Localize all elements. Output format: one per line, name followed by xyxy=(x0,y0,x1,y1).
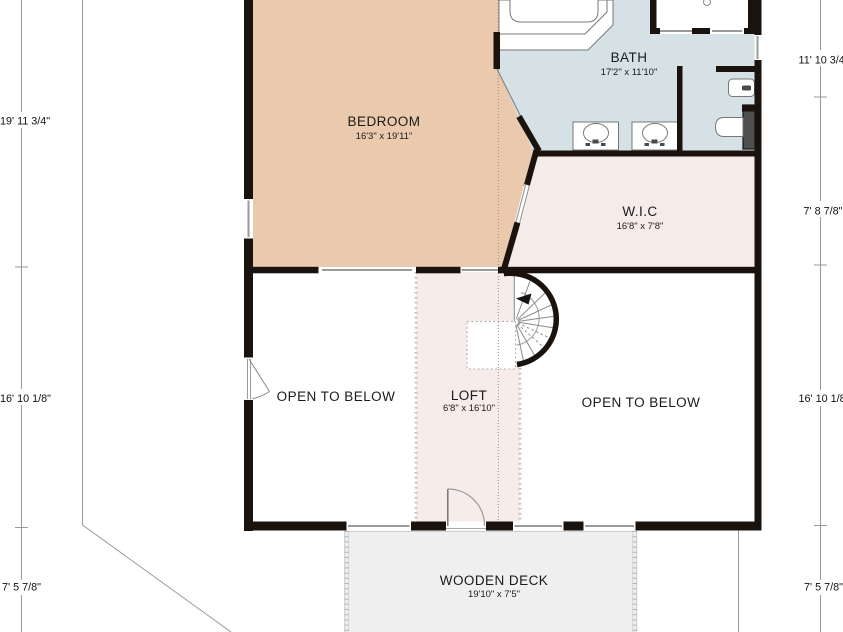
svg-text:WOODEN DECK: WOODEN DECK xyxy=(440,573,548,588)
svg-text:W.I.C: W.I.C xyxy=(622,204,657,219)
svg-text:11' 10 3/4": 11' 10 3/4" xyxy=(799,55,843,67)
svg-text:16' 10 1/8": 16' 10 1/8" xyxy=(799,393,843,405)
svg-text:17'2" x 11'10": 17'2" x 11'10" xyxy=(601,67,658,78)
svg-text:OPEN TO BELOW: OPEN TO BELOW xyxy=(582,395,701,410)
svg-text:7' 8 7/8": 7' 8 7/8" xyxy=(804,206,843,218)
svg-text:7' 5 7/8": 7' 5 7/8" xyxy=(804,582,843,594)
svg-text:7' 5 7/8": 7' 5 7/8" xyxy=(2,582,41,594)
svg-text:OPEN TO BELOW: OPEN TO BELOW xyxy=(277,389,396,404)
svg-text:BEDROOM: BEDROOM xyxy=(348,114,421,129)
svg-text:16'3" x 19'11": 16'3" x 19'11" xyxy=(356,131,413,142)
svg-text:16' 10 1/8": 16' 10 1/8" xyxy=(0,393,51,405)
svg-text:16'8" x 7'8": 16'8" x 7'8" xyxy=(617,221,664,232)
svg-text:6'8" x 16'10": 6'8" x 16'10" xyxy=(443,403,495,414)
svg-text:LOFT: LOFT xyxy=(451,388,487,403)
svg-text:BATH: BATH xyxy=(611,50,648,65)
svg-text:19'10" x 7'5": 19'10" x 7'5" xyxy=(468,589,520,600)
svg-text:19' 11 3/4": 19' 11 3/4" xyxy=(0,116,50,128)
